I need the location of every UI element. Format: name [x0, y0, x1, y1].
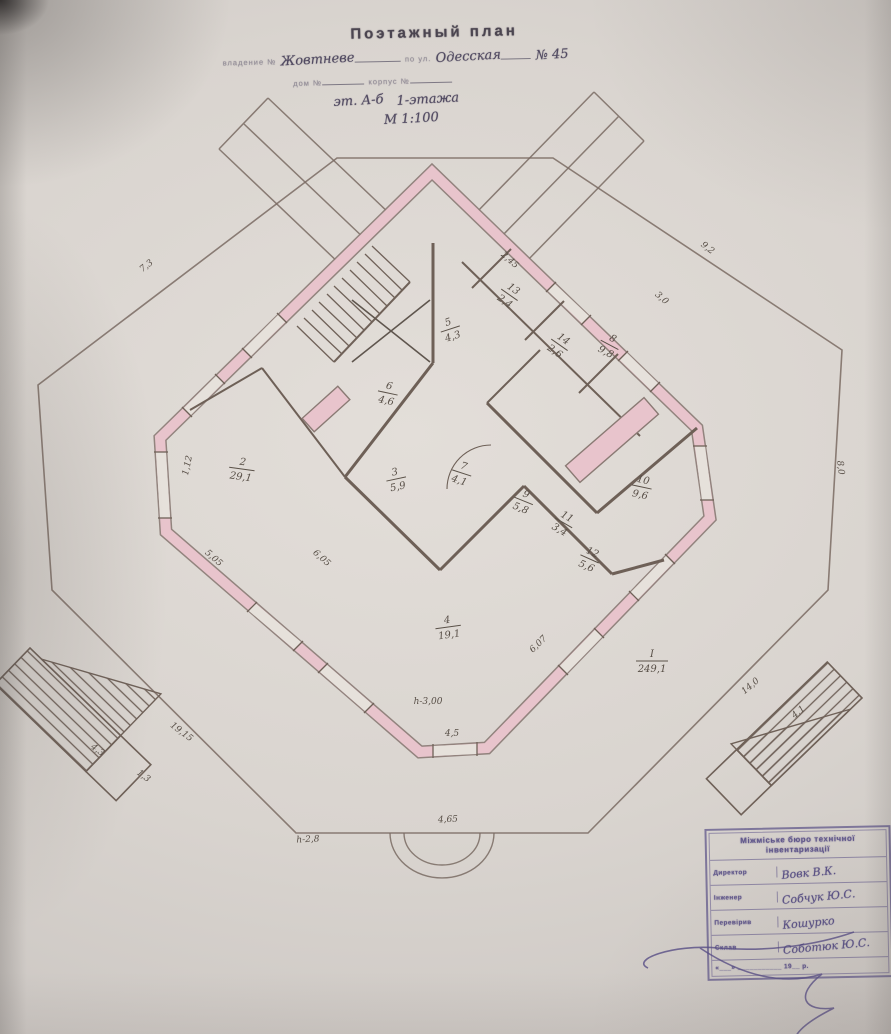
street-label: по ул.	[405, 54, 432, 64]
room-label: 35,9	[384, 465, 409, 495]
dimension-label: 4,5	[444, 729, 460, 739]
house-label: дом №	[293, 78, 322, 88]
dimension-label: 4,65	[437, 815, 459, 826]
stamp-row-label: Директор	[710, 866, 777, 878]
bti-stamp: Міжміське бюро технічної інвентаризації …	[704, 825, 891, 981]
stamp-row-label: Інженер	[711, 891, 778, 903]
room-label: 64,6	[375, 379, 400, 409]
svg-text:4,1: 4,1	[449, 473, 468, 489]
svg-text:6: 6	[385, 381, 394, 393]
dimension-label: 3,0	[653, 290, 671, 307]
dimension-label: h-3,00	[414, 697, 443, 707]
dimension-label: 8,0	[834, 460, 846, 476]
dimension-label: h-2,8	[296, 834, 320, 845]
stamp-row: ІнженерСобчук Ю.С.	[711, 881, 887, 910]
dimension-label: 6,05	[311, 548, 333, 569]
street-value: Одесская	[435, 47, 501, 66]
dimension-label: 1,12	[181, 454, 195, 476]
dimension-label: 19,15	[168, 721, 195, 745]
stamp-row-signature: Собчук Ю.С.	[777, 884, 887, 907]
stair-bottom-right	[701, 656, 862, 814]
dimension-label: 1,3	[134, 768, 152, 785]
dimension-label: 9,2	[699, 240, 717, 257]
stair-bottom-left	[0, 606, 191, 800]
room-label: 54,3	[437, 314, 464, 345]
svg-text:14: 14	[555, 331, 572, 347]
svg-text:10: 10	[636, 474, 651, 488]
svg-text:13: 13	[505, 281, 522, 297]
svg-text:I: I	[649, 649, 655, 660]
svg-text:9: 9	[521, 489, 532, 502]
svg-text:5: 5	[444, 317, 453, 329]
stamp-row: СклавСоботюк Ю.С.	[712, 931, 888, 960]
entrance-arc	[390, 833, 494, 878]
litera-value: эт. А-б	[333, 92, 384, 110]
owner-value: Жовтневе	[280, 50, 355, 69]
svg-text:4,6: 4,6	[376, 394, 395, 408]
stamp-row: ПеревіривКошурко	[711, 906, 887, 935]
svg-text:4: 4	[442, 615, 451, 627]
dimension-label: 6,07	[528, 634, 550, 655]
stamp-row: ДиректорВовк В.К.	[710, 856, 886, 885]
staircase	[297, 246, 410, 362]
owner-label: владение №	[223, 57, 277, 67]
room-label: 419,1	[434, 613, 463, 642]
svg-text:5,8: 5,8	[511, 501, 530, 517]
interior-walls	[190, 243, 697, 574]
scale-value: М 1:100	[384, 110, 440, 128]
svg-text:29,1: 29,1	[228, 470, 253, 484]
room-label: 229,1	[227, 455, 256, 484]
room-label: 109,6	[629, 473, 654, 503]
stamp-row-signature: Соботюк Ю.С.	[778, 934, 888, 957]
svg-text:3: 3	[391, 467, 400, 479]
room-label: 95,8	[509, 486, 537, 518]
svg-text:7: 7	[459, 461, 469, 474]
house-number: № 45	[535, 47, 569, 64]
svg-text:4,3: 4,3	[443, 329, 462, 345]
room-label: I249,1	[636, 649, 668, 675]
stamp-row-label: Перевірив	[711, 916, 778, 928]
room-label: 132,4	[493, 279, 524, 312]
title-block: Поэтажный план владение № Жовтневе по ул…	[204, 19, 666, 132]
svg-text:249,1: 249,1	[637, 664, 667, 675]
svg-text:9,6: 9,6	[631, 488, 649, 502]
stamp-row-label: Склав	[712, 941, 779, 953]
scanned-floor-plan-page: 54,364,6229,135,974,1132,4142,689,895,81…	[0, 0, 891, 1034]
stamp-date-line: «___» ___________ 19__ р.	[712, 956, 888, 976]
stamp-row-signature: Вовк В.К.	[777, 859, 887, 882]
svg-text:19,1: 19,1	[438, 628, 462, 642]
svg-text:5,9: 5,9	[389, 480, 407, 494]
stove-block	[302, 386, 350, 431]
block-label: корпус №	[368, 77, 410, 87]
stamp-rows: ДиректорВовк В.К.ІнженерСобчук Ю.С.Перев…	[710, 856, 888, 960]
stamp-frame: Міжміське бюро технічної інвентаризації …	[709, 829, 890, 977]
pink-slab-block	[566, 398, 659, 483]
stamp-row-signature: Кошурко	[778, 909, 888, 932]
dimension-label: 7,3	[138, 258, 156, 275]
storeys-value: 1-этажа	[397, 90, 460, 108]
dimension-label: 14,0	[740, 676, 762, 697]
room-label: 74,1	[448, 458, 475, 489]
svg-text:2: 2	[238, 457, 247, 469]
stamp-header: Міжміське бюро технічної інвентаризації	[710, 830, 887, 860]
